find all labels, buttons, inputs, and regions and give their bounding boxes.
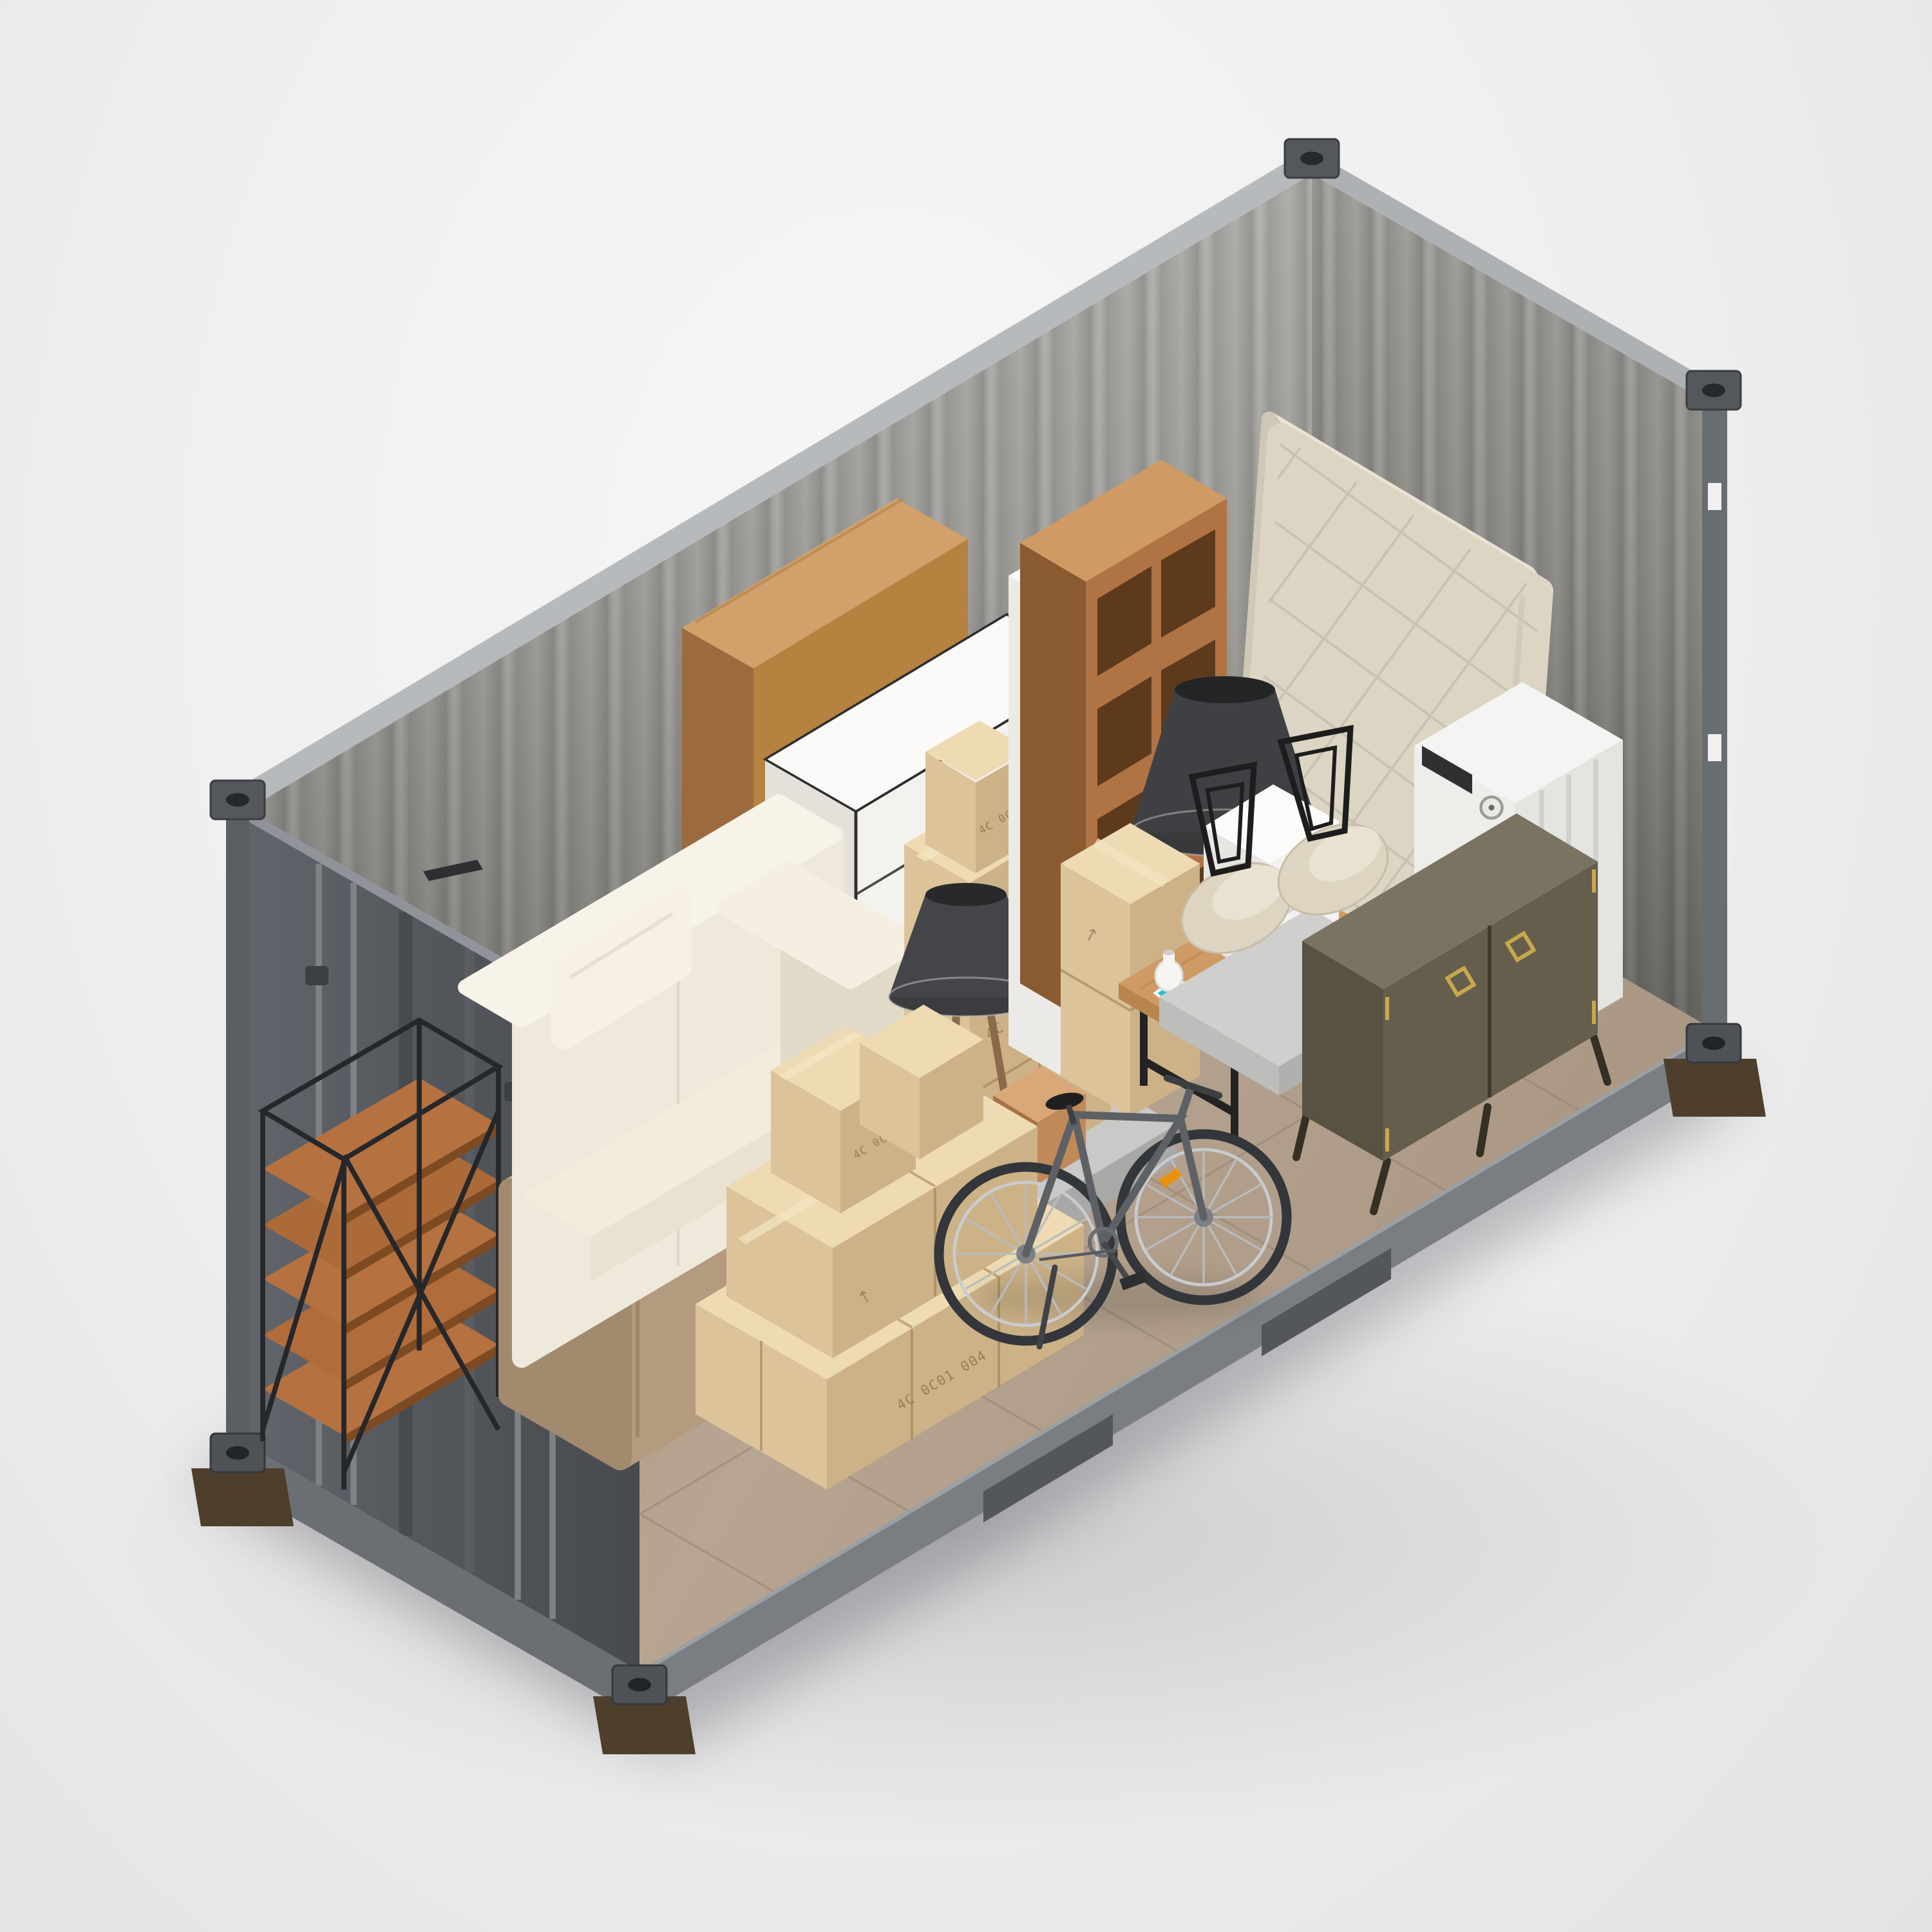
studio-backdrop: Isometric 3D cutaway of a gray shipping …: [0, 0, 1932, 1932]
corner-post-back-left: [226, 815, 249, 1445]
scene-illustration: Isometric 3D cutaway of a gray shipping …: [0, 0, 1932, 1932]
